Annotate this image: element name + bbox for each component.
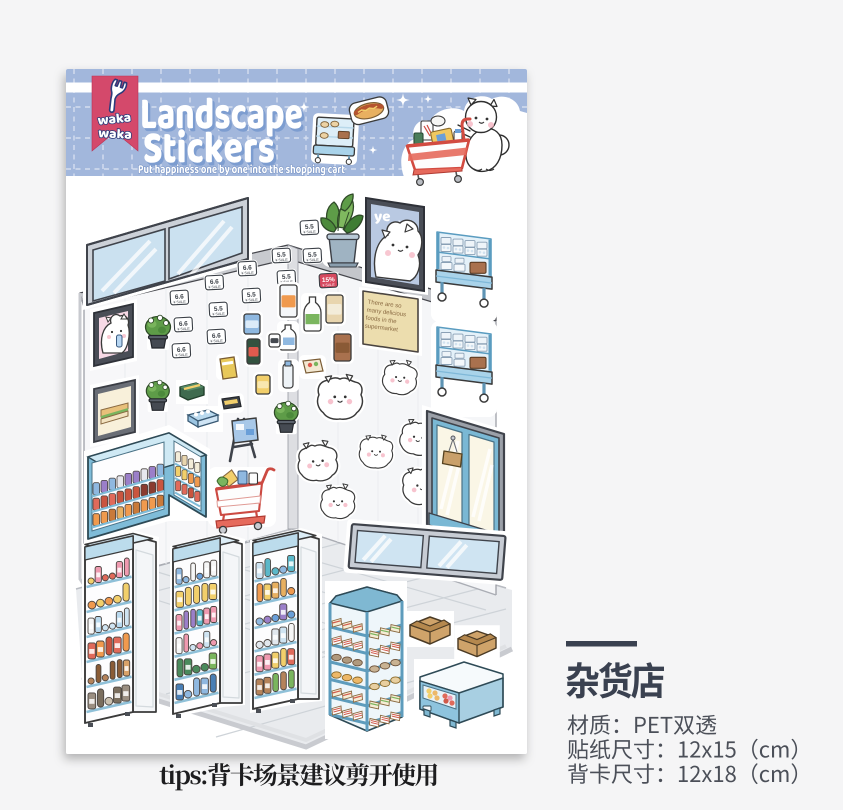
svg-text:¥ SALE: ¥ SALE [245,298,258,303]
svg-text:¥ SALE: ¥ SALE [212,312,225,317]
svg-text:¥ SALE: ¥ SALE [303,230,316,235]
svg-text:¥ SALE: ¥ SALE [306,258,319,263]
svg-text:¥ SALE: ¥ SALE [175,353,188,358]
svg-text:¥ SALE: ¥ SALE [210,339,223,344]
svg-text:¥ SALE: ¥ SALE [208,285,221,290]
svg-text:¥ SALE: ¥ SALE [241,271,254,276]
svg-text:¥ SALE: ¥ SALE [177,327,190,332]
svg-text:¥ SALE: ¥ SALE [173,300,186,305]
svg-text:¥ SALE: ¥ SALE [322,283,335,288]
svg-text:¥ SALE: ¥ SALE [275,258,288,263]
